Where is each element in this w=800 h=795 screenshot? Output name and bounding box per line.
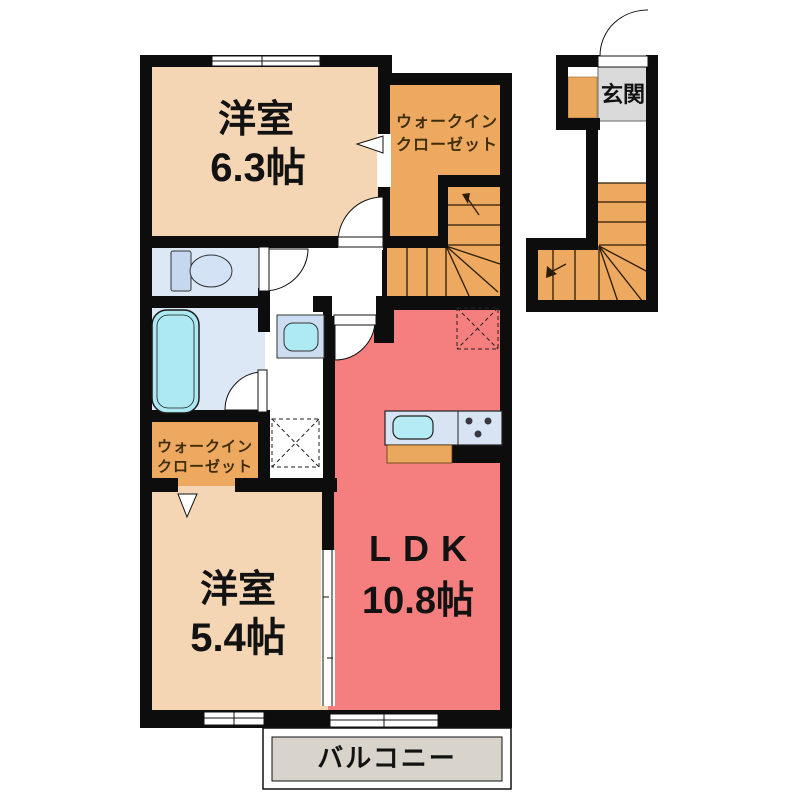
door-toilet (259, 247, 308, 291)
window-ldk-balcony (330, 714, 438, 727)
stairs-1f-floor (598, 183, 648, 303)
floorplan: 洋室 6.3帖 ウォークイン クローゼット 玄関 ウォークイン クローゼット 洋… (0, 0, 800, 795)
lower-wic-label-line1: ウォークイン (157, 440, 253, 455)
upper-bedroom-size: 6.3帖 (210, 148, 306, 188)
lower-bedroom-label: 洋室 (200, 571, 276, 609)
stairs-1f-floor-lower (536, 245, 599, 303)
shoe-cabinet (568, 77, 597, 118)
upper-wic-label-line2: クローゼット (396, 138, 498, 154)
lower-bedroom-size: 5.4帖 (190, 618, 286, 658)
entrance-label: 玄関 (601, 84, 645, 106)
lower-wic-label-line2: クローゼット (157, 460, 253, 475)
window-lower-bedroom (204, 712, 264, 725)
washbasin (277, 315, 324, 358)
washer-pan-marker (272, 419, 319, 467)
balcony-label: バルコニー (317, 745, 456, 771)
entrance-unit (526, 10, 658, 312)
bathtub (152, 310, 199, 413)
ldk-floor (328, 306, 507, 716)
door-entrance (598, 10, 648, 67)
kitchen-cabinet (387, 445, 452, 463)
window-upper-bedroom (212, 56, 320, 66)
sliding-door-bedroom-ldk (321, 550, 335, 706)
ldk-size: 10.8帖 (362, 582, 474, 620)
upper-bedroom-label: 洋室 (218, 101, 294, 139)
ldk-label: LDK (357, 531, 479, 567)
upper-wic-label-line1: ウォークイン (396, 115, 498, 131)
kitchen-sink (393, 416, 433, 439)
